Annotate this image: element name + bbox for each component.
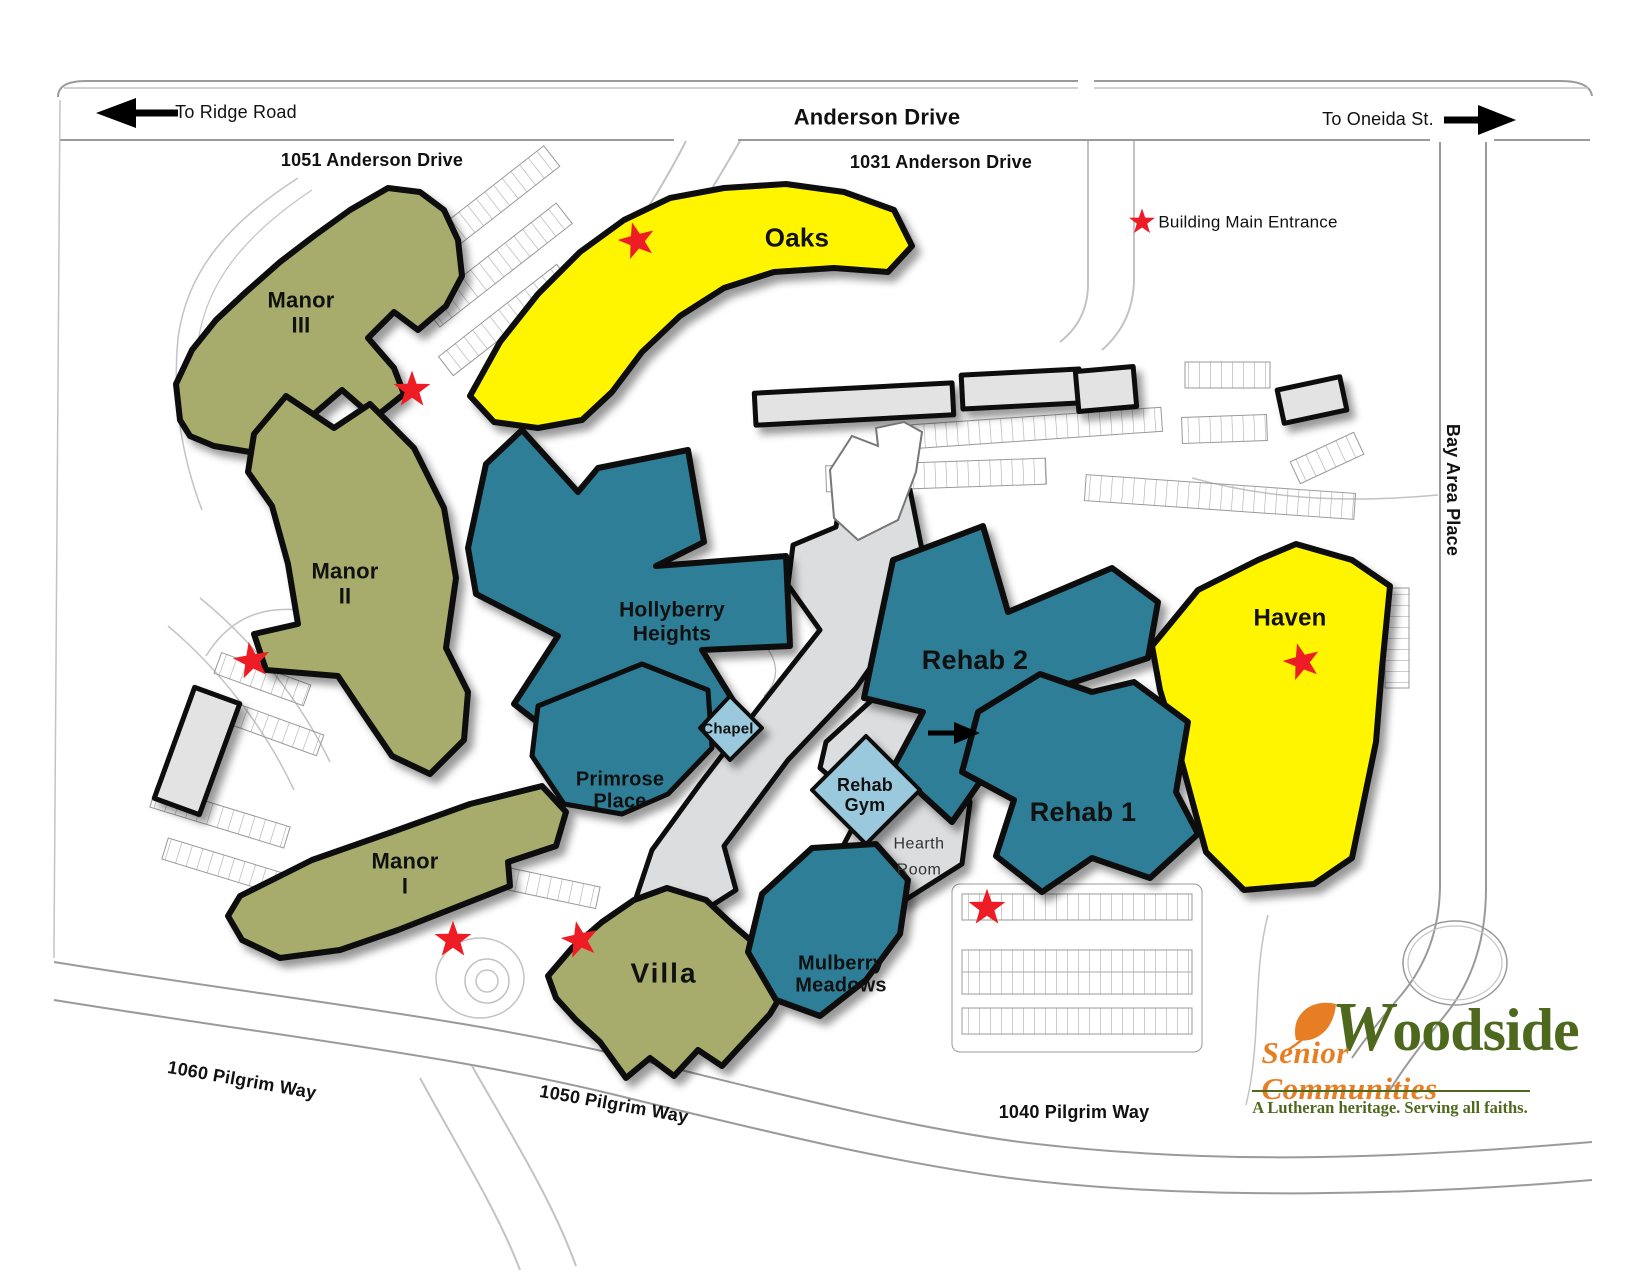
building-villa-shape	[548, 888, 788, 1078]
logo-teardrop-path	[1403, 921, 1507, 1005]
driveway-north-lot	[1060, 141, 1134, 350]
main-entrance-star	[435, 921, 472, 956]
villa-roundabout-inner	[476, 970, 498, 992]
logo-squiggle-path	[1246, 915, 1268, 1105]
parking-strip	[1185, 362, 1270, 388]
parking-strip	[962, 1008, 1192, 1034]
parking-strip	[1182, 415, 1268, 444]
parking-strip	[1084, 475, 1355, 520]
gray-building-shape	[154, 687, 239, 814]
villa-roundabout-outer	[465, 959, 509, 1003]
road-pilgrim-way-bottom-edge	[54, 1000, 1592, 1193]
road-south-spur	[420, 1066, 576, 1270]
west-arrowhead-icon	[96, 98, 136, 128]
gray-building-shape	[1075, 367, 1136, 412]
campus-map-svg	[0, 0, 1647, 1272]
road-anderson-top-edge	[58, 81, 1078, 97]
gray-building-shape	[961, 369, 1081, 409]
logo-leaf-icon	[1288, 1003, 1336, 1050]
leaf-body	[1295, 1003, 1336, 1041]
map-west-border	[54, 100, 60, 958]
parking-strip	[227, 703, 324, 756]
gray-building-shape	[754, 383, 953, 425]
legend-star-icon	[1129, 208, 1155, 233]
campus-map: To Ridge Road Anderson Drive To Oneida S…	[0, 0, 1647, 1272]
buildings-layer	[176, 184, 1390, 1078]
building-manor-iii-shape	[176, 188, 462, 452]
gray-building-shape	[1277, 377, 1347, 424]
building-manor-ii-shape	[248, 396, 468, 774]
building-mulberry-meadows-shape	[748, 844, 908, 1016]
building-rehab-1-shape	[962, 674, 1198, 892]
parking-strip	[1290, 432, 1364, 483]
east-arrowhead-icon	[1478, 105, 1516, 135]
